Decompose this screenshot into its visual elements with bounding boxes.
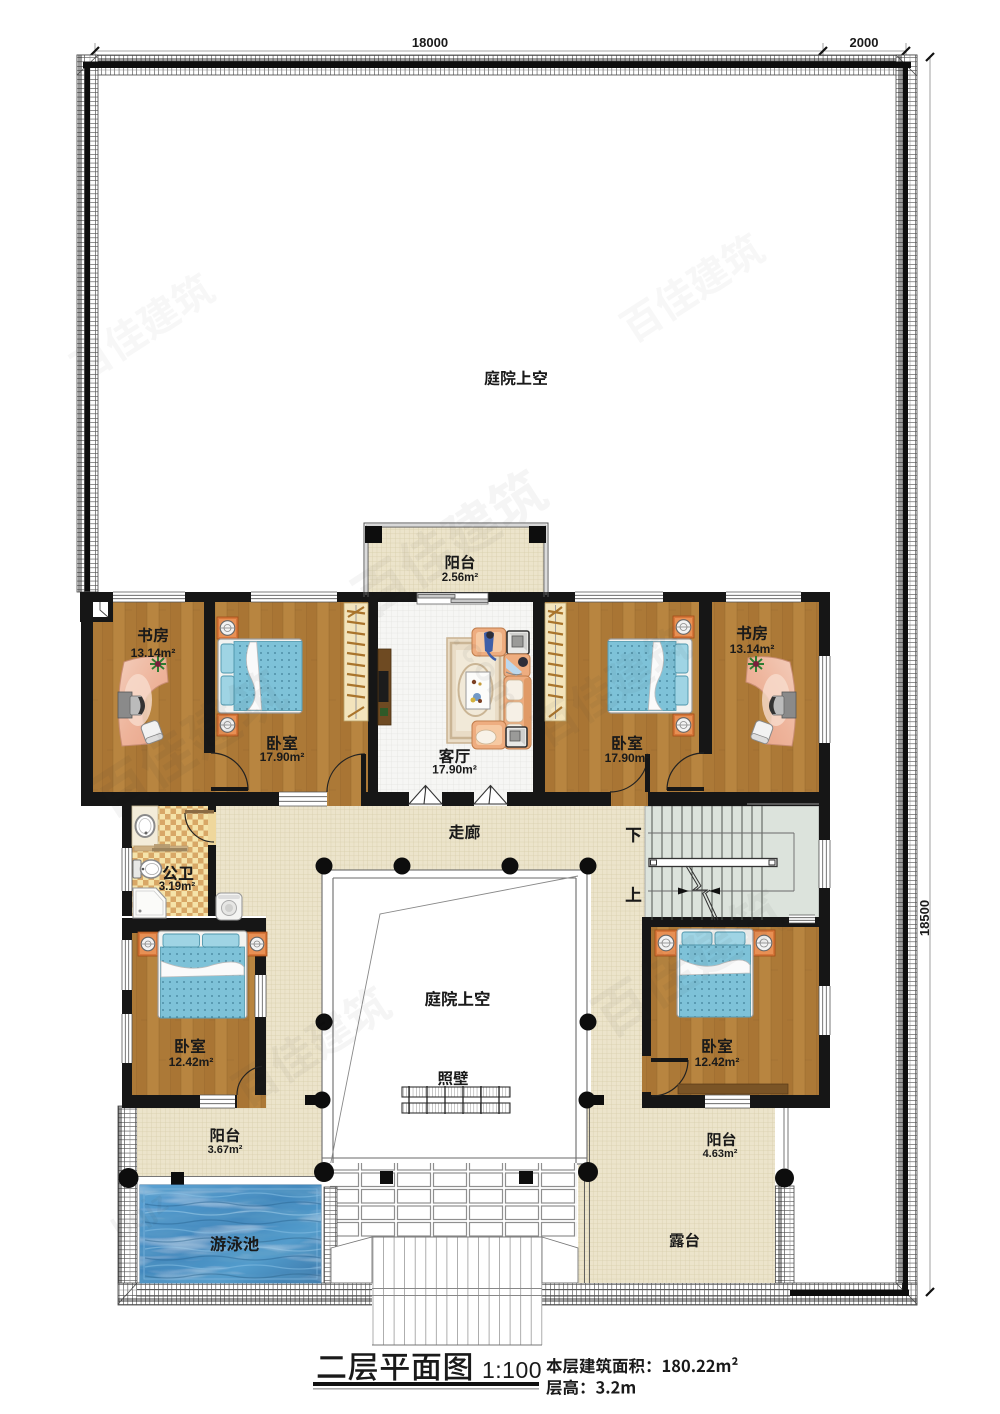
svg-text:1:100: 1:100 — [482, 1357, 542, 1383]
svg-text:2000: 2000 — [850, 35, 879, 50]
svg-text:13.14m²: 13.14m² — [730, 642, 775, 656]
svg-text:3.19m²: 3.19m² — [159, 881, 196, 893]
svg-text:17.90m²: 17.90m² — [605, 751, 650, 765]
svg-text:18000: 18000 — [412, 35, 448, 50]
svg-text:3.67m²: 3.67m² — [208, 1144, 243, 1156]
svg-text:12.42m²: 12.42m² — [695, 1055, 740, 1069]
svg-text:17.90m²: 17.90m² — [260, 750, 305, 764]
svg-text:17.90m²: 17.90m² — [432, 763, 477, 777]
svg-text:13.14m²: 13.14m² — [131, 646, 176, 660]
svg-text:4.63m²: 4.63m² — [703, 1148, 738, 1160]
svg-text:2.56m²: 2.56m² — [442, 572, 479, 584]
svg-text:12.42m²: 12.42m² — [169, 1055, 214, 1069]
svg-text:18500: 18500 — [917, 900, 932, 936]
